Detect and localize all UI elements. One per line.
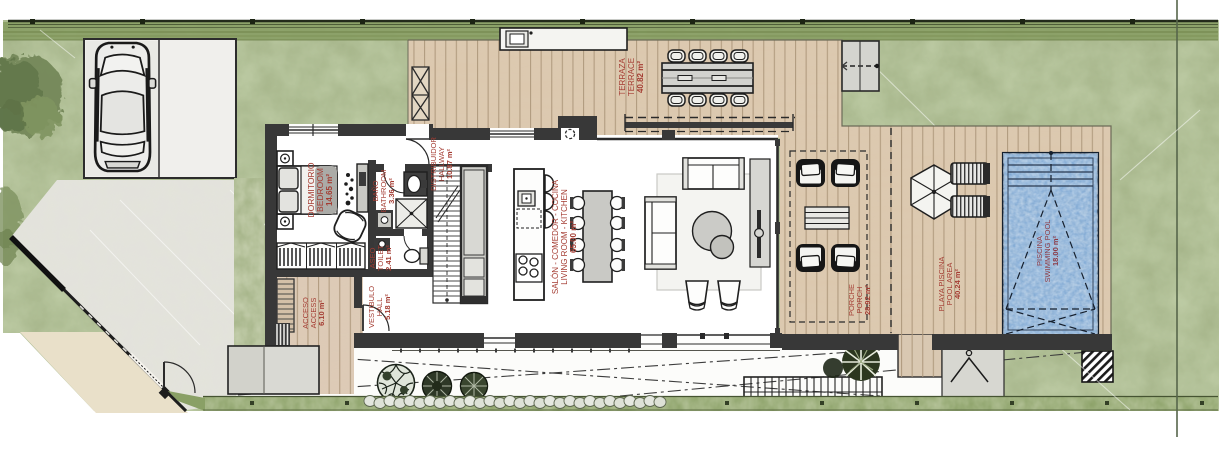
svg-text:40.82 m²: 40.82 m² xyxy=(636,61,645,93)
svg-text:65.00 m²: 65.00 m² xyxy=(569,221,578,253)
svg-text:SALÓN - COMEDOR - COCINA: SALÓN - COMEDOR - COCINA xyxy=(551,179,560,294)
svg-text:5.18 m²: 5.18 m² xyxy=(383,294,392,320)
svg-text:3.36 m²: 3.36 m² xyxy=(387,178,396,204)
svg-text:14.65 m²: 14.65 m² xyxy=(325,174,334,206)
svg-text:2.41 m²: 2.41 m² xyxy=(384,245,393,271)
svg-text:6.10 m²: 6.10 m² xyxy=(317,300,326,326)
svg-text:10.87 m²: 10.87 m² xyxy=(445,148,454,179)
svg-text:BEDROOM: BEDROOM xyxy=(315,168,325,212)
svg-text:40.24 m²: 40.24 m² xyxy=(953,268,962,299)
svg-text:LIVING ROOM - KITCHEN: LIVING ROOM - KITCHEN xyxy=(560,189,569,285)
svg-text:TERRAZA: TERRAZA xyxy=(618,58,627,96)
svg-text:28.92 m²: 28.92 m² xyxy=(863,284,872,315)
svg-text:TERRACE: TERRACE xyxy=(627,58,636,96)
svg-text:18.00 m²: 18.00 m² xyxy=(1051,235,1060,266)
